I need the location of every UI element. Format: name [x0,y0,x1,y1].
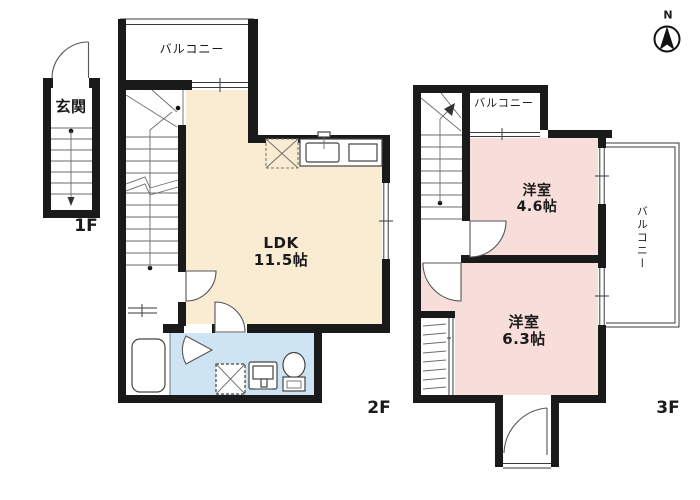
room-4-6-label: 洋室 4.6帖 [517,183,558,215]
vanity-sink-icon [249,362,277,389]
entrance-label: 玄関 [55,98,86,115]
stove-icon [349,144,377,161]
room-4-6-name: 洋室 [523,183,552,199]
room-6-3-name: 洋室 [508,313,539,331]
closet [421,318,455,395]
floor2-label: 2F [367,399,390,419]
balcony-2f-label: バルコニー [160,43,225,57]
compass-north-label: N [663,10,672,23]
roof-door [503,403,551,468]
floor2-plan [118,19,393,403]
floorplan-canvas: 玄関 1F バルコニー LDK 11.5帖 2F バルコニー 洋室 4.6帖 バ… [0,0,700,500]
ldk-name: LDK [263,234,298,252]
stairs-2f [126,90,180,270]
stairs-1f [51,128,92,206]
toilet-icon [283,353,305,392]
floor3-plan [413,85,681,468]
bathtub-icon [132,339,165,392]
balcony-2f [120,19,254,25]
faucet-icon [318,132,330,137]
ldk-label: LDK 11.5帖 [254,235,309,270]
compass [655,27,680,52]
entrance-door-arc [52,42,89,79]
balcony-window-2f [192,78,248,92]
floorplan-drawing [0,0,700,500]
balcony-3f-top-label: バルコニー [474,98,534,111]
balcony-3f-side-label: バルコニー [635,206,648,271]
kitchen-sink-icon [306,143,339,162]
washer-space-icon [216,364,245,394]
floor1-label: 1F [74,217,97,237]
room-6-3-size: 6.3帖 [502,330,546,348]
floor3-label: 3F [656,399,679,419]
room-4-6-size: 4.6帖 [517,199,558,215]
floor1-plan [43,42,100,218]
stairs-3f [421,93,462,219]
ldk-floor [186,90,382,324]
room-6-3-label: 洋室 6.3帖 [502,314,546,349]
ldk-size: 11.5帖 [254,251,309,269]
hall-window [128,304,157,317]
